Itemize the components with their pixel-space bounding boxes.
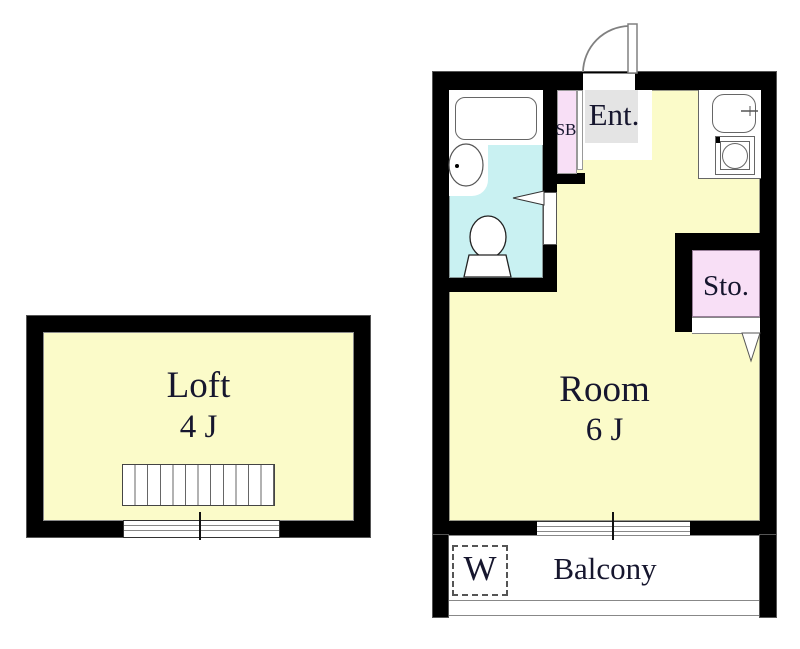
loft-area-label: 4 J — [43, 411, 354, 444]
washbasin-area — [449, 140, 488, 196]
balcony-label: Balcony — [520, 553, 690, 584]
room-label: Room — [449, 371, 760, 408]
storage-door-opening — [692, 317, 760, 334]
kitchen-counter — [698, 90, 761, 179]
room-area-label: 6 J — [449, 414, 760, 447]
bathroom-floor — [449, 90, 543, 278]
shoebox-end-wall — [545, 173, 585, 184]
bathroom-bottom-wall — [449, 278, 557, 292]
washer-label: W — [452, 551, 508, 586]
balcony-left-wall — [433, 535, 448, 617]
entrance-door-swing-icon — [583, 24, 637, 73]
burner-icon — [722, 143, 748, 169]
kitchen-sink-icon — [712, 94, 756, 133]
stove-icon — [715, 136, 755, 175]
stove-knob-icon — [716, 137, 720, 143]
loft-window-icon — [123, 520, 280, 538]
bathroom-door-icon — [543, 192, 557, 245]
storage-label: Sto. — [690, 272, 762, 301]
shoebox-label: SB — [549, 121, 583, 138]
balcony-right-wall — [760, 535, 776, 617]
entrance-door-threshold — [583, 73, 635, 91]
floor-plan: Loft 4 J SB Ent. Sto. Room 6 J — [0, 0, 800, 649]
bathtub-icon — [455, 97, 537, 140]
balcony-railing — [448, 600, 760, 616]
stove-inner-frame — [720, 141, 750, 170]
loft-label: Loft — [43, 367, 354, 404]
ladder-hatch-icon — [122, 464, 275, 506]
entrance-label: Ent. — [581, 99, 647, 130]
